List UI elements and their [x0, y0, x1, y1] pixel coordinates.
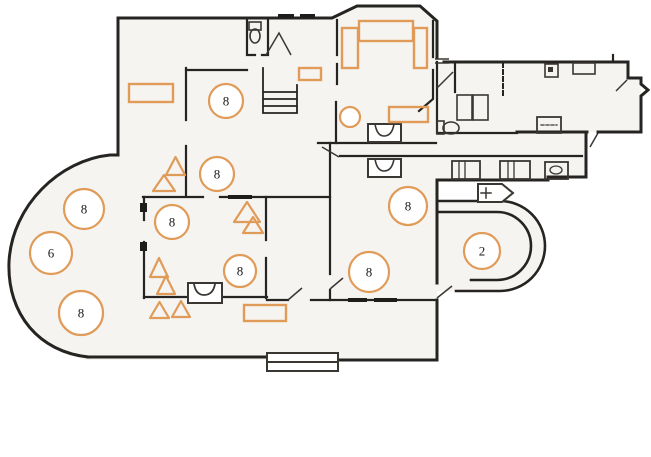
- circle-marker-label: 8: [214, 167, 221, 182]
- circle-marker-outline: [340, 107, 360, 127]
- circle-marker-c10: 2: [464, 233, 500, 269]
- fireplace: [188, 283, 222, 303]
- circle-marker-c9: 8: [389, 187, 427, 225]
- circle-marker-label: 8: [78, 306, 85, 321]
- circle-marker-c1: 8: [209, 84, 243, 118]
- circle-marker-c2: 8: [200, 157, 234, 191]
- floor-plan-canvas: 8888688882: [0, 0, 651, 457]
- circle-marker-label: 8: [81, 202, 88, 217]
- circle-marker-label: 8: [237, 264, 244, 279]
- circle-marker-label: 8: [169, 215, 176, 230]
- circle-marker-label: 8: [366, 265, 373, 280]
- vanity-sink: [368, 124, 401, 142]
- circle-marker-c8: 8: [349, 252, 389, 292]
- vanity-sink: [368, 159, 401, 177]
- footprint-wash: [9, 6, 641, 360]
- floor-plan-svg: 8888688882: [0, 0, 651, 457]
- circle-marker-c5: 6: [30, 232, 72, 274]
- circle-marker-label: 8: [405, 199, 412, 214]
- circle-marker-c6: 8: [59, 291, 103, 335]
- circle-marker-label: 8: [223, 94, 230, 109]
- circle-marker-c7: 8: [224, 255, 256, 287]
- circle-marker-label: 2: [479, 244, 486, 259]
- circle-marker-c3: 8: [64, 189, 104, 229]
- circle-marker-label: 6: [48, 246, 55, 261]
- circle-marker-c11: [340, 107, 360, 127]
- circle-marker-c4: 8: [155, 205, 189, 239]
